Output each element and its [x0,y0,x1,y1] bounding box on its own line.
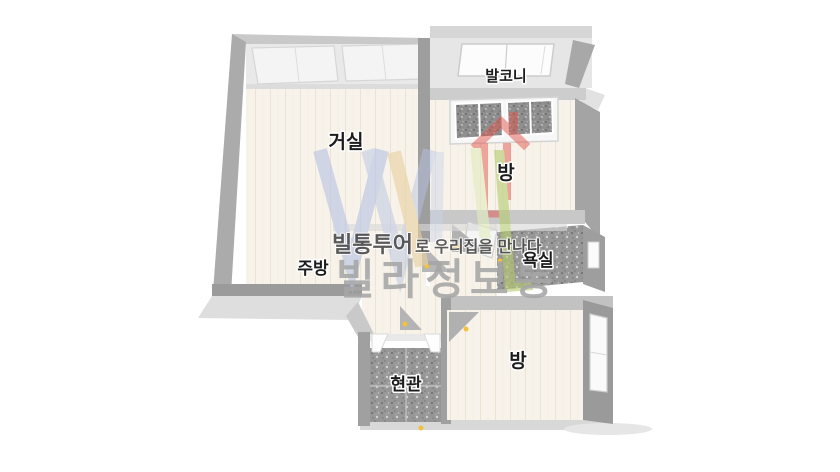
entry-door-handle-icon [419,426,424,431]
bottom-right-shadow [564,423,652,435]
label-bathroom: 욕실 [522,251,553,270]
door-handle-icon [403,322,408,327]
closet-panel-left [252,46,338,84]
balcony-block [430,26,595,100]
label-balcony: 발코니 [485,68,526,85]
entrance-left-wall [358,332,370,426]
label-bedroom-top: 방 [497,162,515,184]
bathroom-window [588,242,599,268]
door-handle-icon [464,327,469,332]
label-entrance: 현관 [390,375,422,394]
floor-plan-image: 빌통투어로 우리집을 만나다 빌라정보통 거실 발코니 방 주방 욕실 현관 방 [0,0,840,472]
watermark-tagline-brand: 빌통투어 [332,232,413,257]
balcony-top-wall [430,26,592,38]
pane-left-mullion [479,103,480,138]
logo-letter-pale-blue-stroke [436,152,438,242]
label-bedroom-bottom: 방 [509,350,527,372]
label-living-room: 거실 [329,131,364,153]
floor-plan-canvas: 빌통투어로 우리집을 만나다 빌라정보통 거실 발코니 방 주방 욕실 현관 방 [0,0,840,472]
closet-sill [246,84,426,89]
pane-right-mullion [530,101,531,135]
label-kitchen: 주방 [297,259,329,278]
